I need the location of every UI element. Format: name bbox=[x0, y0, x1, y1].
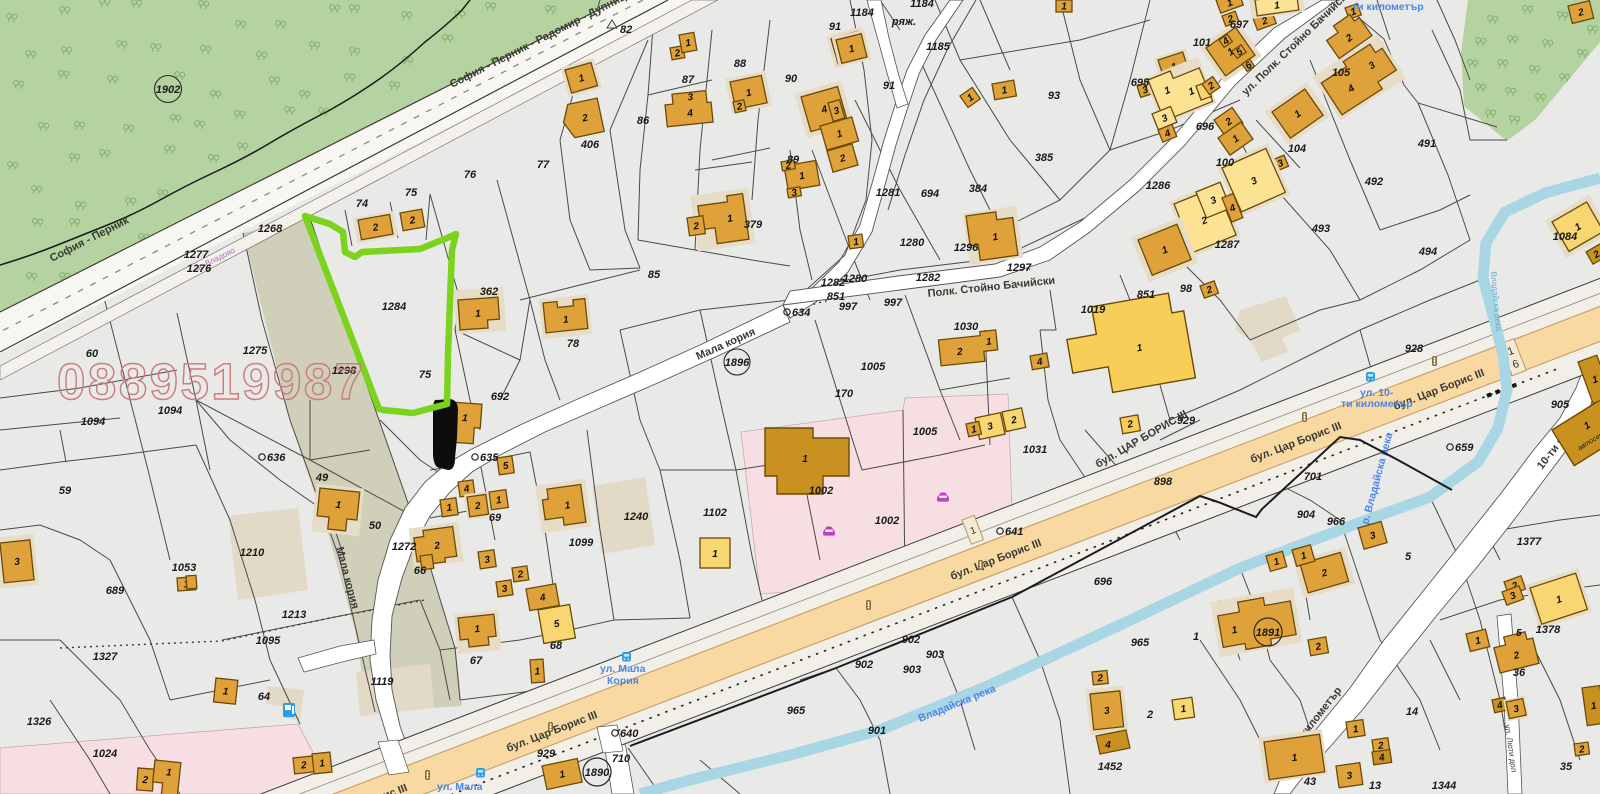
svg-text:66: 66 bbox=[414, 565, 427, 577]
svg-text:1281: 1281 bbox=[876, 187, 900, 199]
svg-text:1277: 1277 bbox=[184, 249, 209, 261]
svg-text:67: 67 bbox=[470, 655, 483, 667]
svg-text:1891: 1891 bbox=[1256, 627, 1280, 639]
svg-text:1284: 1284 bbox=[382, 301, 406, 313]
svg-text:1002: 1002 bbox=[875, 515, 899, 527]
svg-text:1030: 1030 bbox=[954, 321, 979, 333]
svg-text:635: 635 bbox=[480, 452, 499, 464]
svg-text:965: 965 bbox=[1131, 637, 1150, 649]
svg-text:1119: 1119 bbox=[371, 676, 395, 688]
svg-text:1185: 1185 bbox=[926, 41, 951, 53]
svg-text:1272: 1272 bbox=[392, 541, 416, 553]
svg-text:902: 902 bbox=[902, 634, 920, 646]
svg-text:91: 91 bbox=[829, 21, 841, 33]
svg-text:1094: 1094 bbox=[81, 416, 105, 428]
svg-text:1: 1 bbox=[1061, 2, 1067, 13]
svg-text:1031: 1031 bbox=[1023, 444, 1047, 456]
svg-text:695: 695 bbox=[1131, 77, 1150, 89]
svg-text:494: 494 bbox=[1418, 246, 1437, 258]
svg-text:851: 851 bbox=[1137, 289, 1155, 301]
svg-text:ти километър: ти километър bbox=[1341, 398, 1413, 410]
svg-text:5: 5 bbox=[1405, 551, 1412, 563]
svg-text:1287: 1287 bbox=[1215, 239, 1240, 251]
svg-text:1102: 1102 bbox=[703, 507, 727, 519]
svg-text:43: 43 bbox=[1303, 776, 1316, 788]
svg-text:82: 82 bbox=[620, 24, 632, 36]
svg-text:101: 101 bbox=[1193, 37, 1211, 49]
svg-text:78: 78 bbox=[567, 338, 580, 350]
svg-text:1896: 1896 bbox=[725, 357, 750, 369]
svg-text:902: 902 bbox=[855, 659, 873, 671]
svg-text:640: 640 bbox=[620, 728, 639, 740]
svg-text:ул. Мала: ул. Мала bbox=[437, 781, 483, 793]
svg-text:1: 1 bbox=[1193, 631, 1199, 643]
svg-text:1326: 1326 bbox=[27, 716, 52, 728]
svg-text:898: 898 bbox=[1154, 476, 1173, 488]
svg-text:91: 91 bbox=[883, 80, 895, 92]
svg-text:1890: 1890 bbox=[585, 767, 610, 779]
svg-text:Кория: Кория bbox=[607, 675, 639, 687]
svg-text:50: 50 bbox=[369, 520, 382, 532]
svg-text:68: 68 bbox=[550, 640, 563, 652]
svg-text:697: 697 bbox=[1230, 19, 1249, 31]
svg-text:492: 492 bbox=[1364, 176, 1383, 188]
svg-text:641: 641 bbox=[1005, 526, 1023, 538]
svg-text:997: 997 bbox=[884, 297, 903, 309]
svg-text:659: 659 bbox=[1455, 442, 1474, 454]
svg-text:966: 966 bbox=[1327, 516, 1346, 528]
svg-text:903: 903 bbox=[926, 649, 944, 661]
svg-text:1280: 1280 bbox=[843, 273, 868, 285]
svg-text:88: 88 bbox=[734, 58, 747, 70]
svg-text:1344: 1344 bbox=[1432, 780, 1456, 792]
svg-text:406: 406 bbox=[580, 139, 600, 151]
svg-text:75: 75 bbox=[405, 187, 418, 199]
svg-text:1377: 1377 bbox=[1517, 536, 1542, 548]
svg-text:13: 13 bbox=[1369, 780, 1381, 792]
svg-text:104: 104 bbox=[1288, 143, 1306, 155]
svg-text:1286: 1286 bbox=[1146, 180, 1171, 192]
svg-text:997: 997 bbox=[839, 301, 858, 313]
svg-text:2: 2 bbox=[1146, 709, 1153, 721]
svg-text:77: 77 bbox=[537, 159, 550, 171]
svg-text:5: 5 bbox=[1516, 628, 1522, 639]
svg-text:696: 696 bbox=[1094, 576, 1113, 588]
svg-text:0889519987: 0889519987 bbox=[57, 353, 366, 410]
svg-text:35: 35 bbox=[1560, 761, 1573, 773]
svg-text:1019: 1019 bbox=[1081, 304, 1106, 316]
svg-text:696: 696 bbox=[1196, 121, 1215, 133]
svg-text:1280: 1280 bbox=[900, 237, 925, 249]
svg-text:1005: 1005 bbox=[913, 426, 938, 438]
svg-text:105: 105 bbox=[1332, 67, 1351, 79]
svg-text:76: 76 bbox=[464, 169, 477, 181]
svg-text:85: 85 bbox=[648, 269, 661, 281]
svg-text:965: 965 bbox=[787, 705, 806, 717]
svg-text:1184: 1184 bbox=[850, 7, 874, 19]
svg-text:1240: 1240 bbox=[624, 511, 649, 523]
svg-text:929: 929 bbox=[537, 748, 556, 760]
svg-text:1084: 1084 bbox=[1553, 231, 1577, 243]
svg-text:90: 90 bbox=[785, 73, 798, 85]
svg-text:1213: 1213 bbox=[282, 609, 306, 621]
svg-text:89: 89 bbox=[787, 154, 800, 166]
svg-text:1: 1 bbox=[802, 454, 808, 465]
svg-text:689: 689 bbox=[106, 585, 125, 597]
svg-text:93: 93 bbox=[1048, 90, 1060, 102]
svg-text:636: 636 bbox=[267, 452, 286, 464]
svg-text:ти километър: ти километър bbox=[1352, 1, 1424, 13]
svg-text:385: 385 bbox=[1035, 152, 1054, 164]
svg-text:86: 86 bbox=[637, 115, 650, 127]
svg-text:4: 4 bbox=[1104, 740, 1111, 751]
svg-text:36: 36 bbox=[1513, 667, 1526, 679]
svg-text:1327: 1327 bbox=[93, 651, 118, 663]
svg-text:903: 903 bbox=[903, 664, 921, 676]
svg-text:69: 69 bbox=[489, 512, 502, 524]
svg-text:634: 634 bbox=[792, 307, 810, 319]
svg-text:379: 379 bbox=[744, 219, 763, 231]
svg-text:362: 362 bbox=[480, 286, 498, 298]
svg-text:1902: 1902 bbox=[156, 84, 180, 96]
svg-text:1282: 1282 bbox=[821, 277, 845, 289]
svg-text:1053: 1053 bbox=[172, 562, 196, 574]
svg-text:928: 928 bbox=[1405, 343, 1424, 355]
svg-text:1005: 1005 bbox=[861, 361, 886, 373]
svg-text:701: 701 bbox=[1304, 471, 1322, 483]
svg-text:929: 929 bbox=[1177, 415, 1196, 427]
svg-text:1210: 1210 bbox=[240, 547, 265, 559]
svg-text:1: 1 bbox=[712, 549, 718, 560]
svg-text:1002: 1002 bbox=[809, 485, 833, 497]
svg-text:1378: 1378 bbox=[1536, 624, 1561, 636]
svg-text:710: 710 bbox=[612, 753, 631, 765]
svg-text:493: 493 bbox=[1311, 223, 1330, 235]
svg-text:1297: 1297 bbox=[1007, 262, 1032, 274]
svg-text:100: 100 bbox=[1216, 157, 1235, 169]
svg-text:64: 64 bbox=[258, 691, 270, 703]
svg-text:74: 74 bbox=[356, 198, 368, 210]
svg-text:87: 87 bbox=[682, 74, 695, 86]
svg-text:59: 59 bbox=[59, 485, 72, 497]
svg-text:491: 491 bbox=[1417, 138, 1436, 150]
svg-text:1452: 1452 bbox=[1098, 761, 1122, 773]
svg-text:1099: 1099 bbox=[569, 537, 594, 549]
svg-text:384: 384 bbox=[969, 183, 987, 195]
svg-text:75: 75 bbox=[419, 369, 432, 381]
svg-text:692: 692 bbox=[491, 391, 509, 403]
svg-text:694: 694 bbox=[921, 188, 939, 200]
svg-text:49: 49 bbox=[315, 472, 329, 484]
svg-text:901: 901 bbox=[868, 725, 886, 737]
svg-text:1268: 1268 bbox=[258, 223, 283, 235]
svg-text:1276: 1276 bbox=[187, 263, 212, 275]
svg-text:1296: 1296 bbox=[954, 242, 979, 254]
svg-text:904: 904 bbox=[1297, 509, 1315, 521]
svg-text:1024: 1024 bbox=[93, 748, 117, 760]
svg-text:ул. Мала: ул. Мала bbox=[600, 663, 646, 675]
svg-text:905: 905 bbox=[1551, 399, 1570, 411]
svg-text:98: 98 bbox=[1180, 283, 1193, 295]
svg-text:170: 170 bbox=[835, 388, 854, 400]
svg-text:2: 2 bbox=[141, 775, 149, 786]
svg-text:1184: 1184 bbox=[910, 0, 934, 10]
svg-text:14: 14 bbox=[1406, 706, 1418, 718]
svg-text:1282: 1282 bbox=[916, 272, 940, 284]
svg-text:1095: 1095 bbox=[256, 635, 281, 647]
svg-text:ряж.: ряж. bbox=[891, 16, 916, 28]
